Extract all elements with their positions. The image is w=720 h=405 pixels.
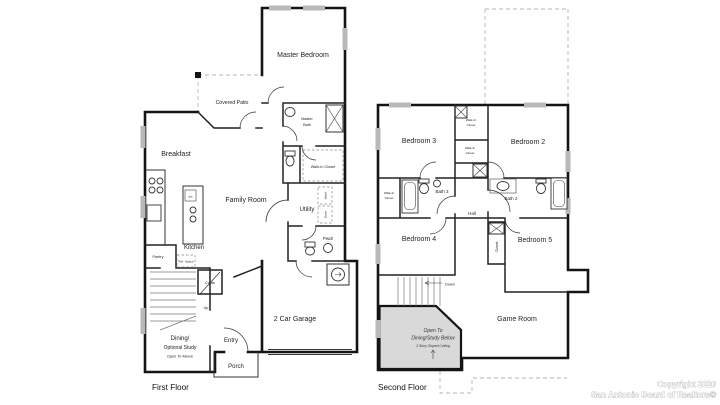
label-open-2: Dining/Study Below <box>411 336 455 342</box>
window <box>376 244 381 264</box>
stairs-down <box>398 277 442 306</box>
second-floor-plan: Bedroom 3 Bedroom 2 Walk-In Closet Walk-… <box>376 9 589 393</box>
label-open-1: Open To <box>424 328 443 334</box>
label-wic-b-2: Closet <box>466 151 475 155</box>
window <box>389 103 411 108</box>
roof-outline-bottom <box>440 371 567 393</box>
floorplan-page: Master Bedroom Covered Patio Breakfast F… <box>0 0 720 405</box>
label-breakfast: Breakfast <box>161 151 191 158</box>
powder-room-fixtures <box>305 242 333 255</box>
label-wic-b-1: Walk-In <box>465 146 476 150</box>
window <box>376 128 381 150</box>
window <box>303 6 325 11</box>
label-open-3: 2 Story Sloped Ceiling <box>415 344 450 348</box>
label-dw: dw <box>189 195 194 199</box>
kitchen-fixtures <box>145 170 203 267</box>
label-ref-space: Ref. Space <box>178 260 194 264</box>
label-game-room: Game Room <box>497 316 537 323</box>
label-master-bath-1: Master <box>301 117 313 121</box>
patio-column <box>195 72 201 78</box>
window <box>566 151 571 172</box>
sink <box>285 108 295 117</box>
first-floor-exterior-walls <box>145 8 357 372</box>
label-dining-2: Optional Study <box>164 345 197 351</box>
toilet-tank <box>419 179 429 183</box>
window <box>141 308 146 334</box>
label-up: Up <box>204 306 209 310</box>
label-bedroom2: Bedroom 2 <box>511 139 545 146</box>
copyright-line2: San Antonio Board of Realtors® <box>591 391 716 400</box>
toilet-tank <box>305 242 315 247</box>
master-bath-fixtures <box>285 105 343 181</box>
toilet-tank <box>536 179 546 183</box>
label-coats: Coats <box>205 281 215 285</box>
toilet <box>306 247 315 255</box>
label-wic-left-2: Closet <box>385 196 394 200</box>
first-floor-title: First Floor <box>152 383 189 392</box>
bath2-fixtures <box>490 178 567 209</box>
window <box>524 103 546 108</box>
sink <box>497 182 509 191</box>
label-porch: Porch <box>228 364 244 370</box>
label-closet: Closet <box>495 241 499 253</box>
first-floor-plan: Master Bedroom Covered Patio Breakfast F… <box>141 6 358 393</box>
label-kitchen: Kitchen <box>184 245 204 251</box>
first-floor-interior-walls <box>145 103 345 372</box>
label-bedroom5: Bedroom 5 <box>518 237 552 244</box>
sink <box>324 244 333 253</box>
label-hall: Hall <box>468 211 476 216</box>
patio-screen-outline <box>198 75 262 112</box>
label-master-bath-2: Bath <box>303 123 311 127</box>
sink <box>434 180 441 187</box>
copyright-watermark: Copyright 2026 San Antonio Board of Real… <box>591 380 716 400</box>
label-bath3: Bath 3 <box>435 189 449 194</box>
first-floor-door-arcs <box>200 87 316 352</box>
label-master-bedroom: Master Bedroom <box>277 52 329 59</box>
label-covered-patio: Covered Patio <box>216 100 249 106</box>
label-wic-left-1: Walk-In <box>384 191 395 195</box>
window <box>269 6 291 11</box>
toilet <box>537 184 546 194</box>
stairs-up <box>150 272 196 330</box>
roof-outline-top <box>485 9 568 105</box>
copyright-line1: Copyright 2026 <box>657 380 717 389</box>
label-bath2: Bath 2 <box>504 196 518 201</box>
label-dryer: Dryer <box>324 211 328 219</box>
window <box>343 28 348 50</box>
label-walk-in-closet: Walk-In Closet <box>311 165 336 169</box>
label-open-to-above: Open To Above <box>167 355 193 359</box>
label-family-room: Family Room <box>225 197 266 204</box>
label-down: Down <box>445 283 455 287</box>
label-entry: Entry <box>224 338 238 344</box>
label-pwdr: Pwdr <box>323 236 334 241</box>
bath3-fixtures <box>402 179 441 213</box>
window <box>141 126 146 148</box>
label-bedroom4: Bedroom 4 <box>402 236 436 243</box>
water-heater <box>327 264 349 285</box>
label-utility: Utility <box>300 207 315 213</box>
label-pantry: Pantry <box>153 255 164 259</box>
kitchen-island <box>183 186 203 244</box>
toilet <box>286 156 294 166</box>
window <box>376 320 381 338</box>
toilet <box>420 184 429 194</box>
label-bedroom3: Bedroom 3 <box>402 138 436 145</box>
second-floor-title: Second Floor <box>378 383 427 392</box>
label-garage: 2 Car Garage <box>274 316 317 323</box>
label-dining-1: Dining/ <box>171 336 190 342</box>
window <box>141 196 146 218</box>
closet-x-boxes <box>455 106 504 234</box>
floorplan-drawing: Master Bedroom Covered Patio Breakfast F… <box>0 0 720 405</box>
label-wic-a-1: Walk-In <box>466 118 477 122</box>
toilet-tank <box>285 151 295 156</box>
label-washer: Wash <box>324 191 328 199</box>
label-wic-a-2: Closet <box>467 123 476 127</box>
